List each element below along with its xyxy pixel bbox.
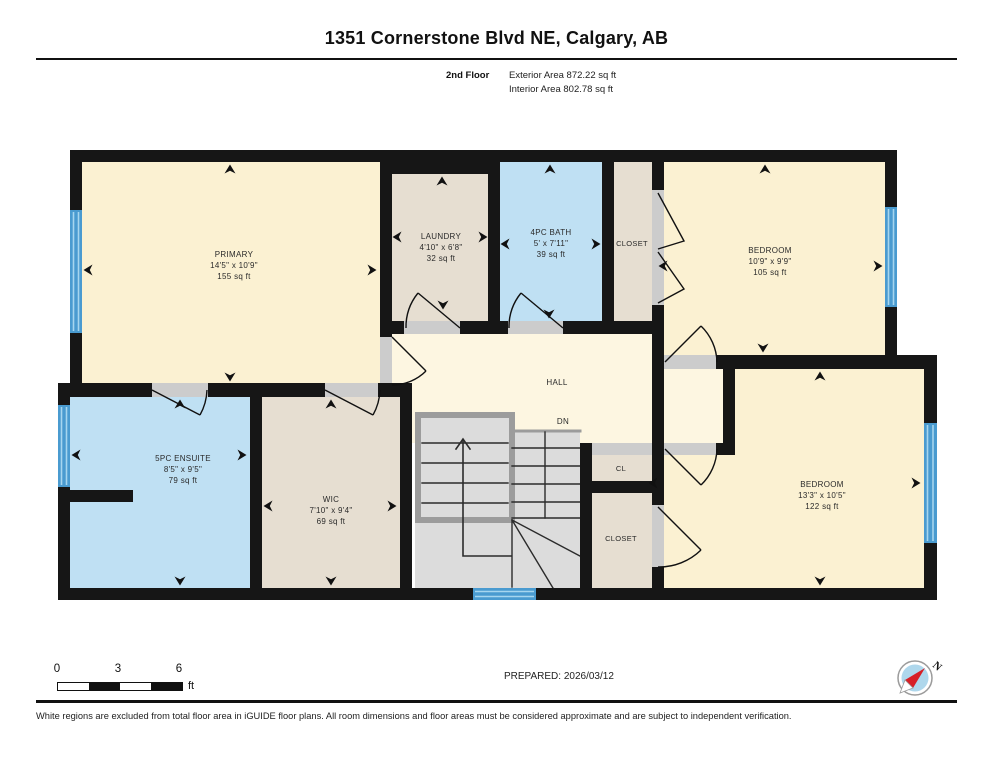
label-primary-area: 155 sq ft xyxy=(217,272,251,281)
label-bedroom-top-name: BEDROOM xyxy=(748,246,791,255)
label-bedroom-top-area: 105 sq ft xyxy=(753,268,787,277)
floorplan-drawing: PRIMARY 14'5" x 10'9" 155 sq ft LAUNDRY … xyxy=(0,140,993,610)
title-divider xyxy=(36,58,957,60)
label-cl: CL xyxy=(616,464,626,473)
footer-divider xyxy=(36,700,957,703)
label-bath-dims: 5' x 7'11" xyxy=(534,239,569,248)
label-bedroom-bottom-dims: 13'3" x 10'5" xyxy=(798,491,846,500)
room-wic xyxy=(262,397,400,588)
scale-segment xyxy=(58,683,89,690)
compass-north-label: N xyxy=(930,659,944,673)
hall-pocket xyxy=(664,369,723,443)
window-primary xyxy=(70,210,82,333)
scale-tick-0: 0 xyxy=(47,663,67,675)
window-bedroom-bottom xyxy=(924,423,937,543)
staircase xyxy=(415,412,580,588)
scale-unit: ft xyxy=(188,680,194,692)
label-bedroom-bottom-name: BEDROOM xyxy=(800,480,843,489)
label-laundry-dims: 4'10" x 6'8" xyxy=(419,243,462,252)
label-wic-name: WIC xyxy=(323,495,339,504)
compass-icon: N xyxy=(891,653,949,703)
label-stairs-dn: DN xyxy=(557,417,569,426)
exterior-area-text: Exterior Area 872.22 sq ft xyxy=(509,70,616,81)
label-bedroom-top-dims: 10'9" x 9'9" xyxy=(748,257,791,266)
label-laundry-name: LAUNDRY xyxy=(421,232,462,241)
page-title: 1351 Cornerstone Blvd NE, Calgary, AB xyxy=(0,28,993,49)
scale-segment xyxy=(151,683,182,690)
label-primary-name: PRIMARY xyxy=(215,250,254,259)
label-wic-dims: 7'10" x 9'4" xyxy=(309,506,352,515)
label-bedroom-bottom-area: 122 sq ft xyxy=(805,502,839,511)
disclaimer-text: White regions are excluded from total fl… xyxy=(36,711,792,721)
scale-segment xyxy=(89,683,120,690)
label-primary-dims: 14'5" x 10'9" xyxy=(210,261,258,270)
window-ensuite xyxy=(58,405,70,487)
label-hall: HALL xyxy=(546,378,567,387)
scale-segment xyxy=(120,683,151,690)
floor-label: 2nd Floor xyxy=(446,70,489,81)
label-ensuite-area: 79 sq ft xyxy=(169,476,198,485)
floorplan-page: 1351 Cornerstone Blvd NE, Calgary, AB 2n… xyxy=(0,0,993,768)
label-bath-area: 39 sq ft xyxy=(537,250,566,259)
label-wic-area: 69 sq ft xyxy=(317,517,346,526)
window-bedroom-top xyxy=(885,207,897,307)
label-closet-bottom: CLOSET xyxy=(605,534,637,543)
label-ensuite-name: 5PC ENSUITE xyxy=(155,454,211,463)
interior-area-text: Interior Area 802.78 sq ft xyxy=(509,84,613,95)
scale-tick-6: 6 xyxy=(169,663,189,675)
label-ensuite-dims: 8'5" x 9'5" xyxy=(164,465,202,474)
scale-tick-3: 3 xyxy=(108,663,128,675)
label-bath-name: 4PC BATH xyxy=(531,228,572,237)
scale-bar xyxy=(57,682,183,691)
label-laundry-area: 32 sq ft xyxy=(427,254,456,263)
label-closet-top: CLOSET xyxy=(616,239,648,248)
prepared-date: PREPARED: 2026/03/12 xyxy=(504,671,614,682)
window-stairs xyxy=(473,588,536,600)
